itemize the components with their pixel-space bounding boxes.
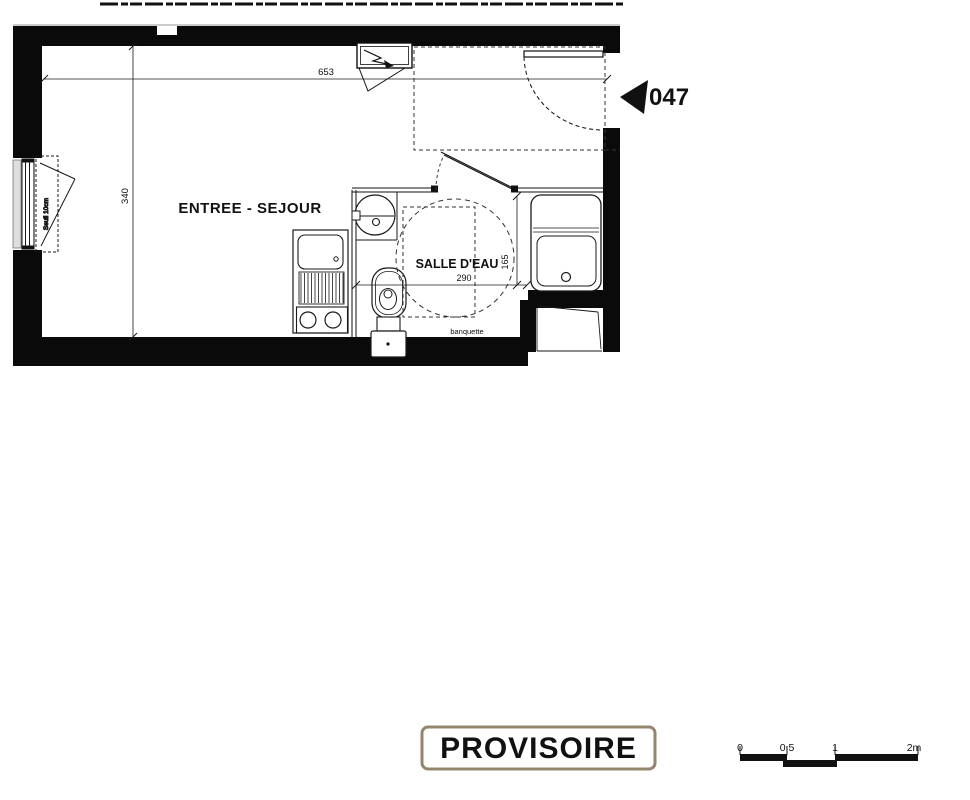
wall-left-upper [13,26,42,158]
toilet-tank-button [386,342,389,345]
scale-segment-1 [740,754,787,761]
entry-door [524,51,603,130]
neighbor-door-recess [537,306,602,351]
entry-door-leaf [524,51,603,57]
toilet-pedestal [377,317,400,331]
shower-enclosure [531,195,601,291]
wall-top-right-block [603,26,620,53]
entry-zone-dashed [414,47,605,150]
washbasin [352,192,397,240]
dim-label-653: 653 [318,67,334,78]
wall-right [603,128,620,352]
washbasin-drain [373,219,380,226]
window-sill [13,160,21,248]
shower [531,195,601,291]
bathroom-label: SALLE D'EAU [416,257,499,271]
banquette-label: banquette [450,327,483,336]
washbasin-tap [352,211,360,220]
provisoire-stamp-label: PROVISOIRE [440,732,637,765]
partition-top-right [515,188,603,192]
window-frame-cap-bottom [22,246,34,250]
scale-label-2m: 2m [907,742,922,754]
threshold-label: Seuil 10cm [43,198,50,230]
scale-segment-3 [835,754,918,761]
window-frame-cap-top [22,159,34,163]
window: Seuil 10cm [13,156,75,252]
unit-number-label: 047 [649,84,689,111]
scale-ticks [740,746,918,755]
wall-bottom-right-stub [520,300,536,352]
electrical-panel [357,43,412,91]
unit-number-tag: 047 [620,80,689,114]
entry-zone [414,47,620,150]
panel-door-flap [359,68,405,91]
bathroom-door-swing-arc [436,155,444,190]
provisoire-stamp: PROVISOIRE [422,727,655,769]
bathroom-door-leaf [441,152,518,192]
scale-bar: 0 0,5 1 2m [737,742,921,767]
wall-top [13,26,607,46]
scale-segment-2 [783,760,837,767]
wall-shower-bottom [528,290,603,308]
washbasin-bowl [355,195,395,235]
door-jamb-left [431,186,438,193]
toilet-bowl-outer [372,268,406,318]
partition-top-left [352,188,433,192]
kitchen-unit [293,230,348,333]
dimension-340: 340 [120,42,137,341]
recess-door-leaf [538,306,601,349]
dimension-165: 165 [500,192,521,289]
wall-bottom [13,337,528,366]
toilet [371,268,406,357]
unit-number-arrow-icon [620,80,648,114]
wall-top-notch [157,26,177,35]
dim-label-165: 165 [500,254,510,269]
dim-label-290: 290 [456,273,471,283]
window-frame [22,159,34,249]
entry-door-swing-arc [524,57,603,130]
dimension-653: 653 [40,67,611,83]
floor-plan-canvas: Seuil 10cm 653 340 047 ENTREE - SEJOUR [0,0,970,800]
room-label: ENTREE - SEJOUR [178,200,321,217]
dim-label-340: 340 [120,188,131,204]
recess-border [537,308,602,351]
